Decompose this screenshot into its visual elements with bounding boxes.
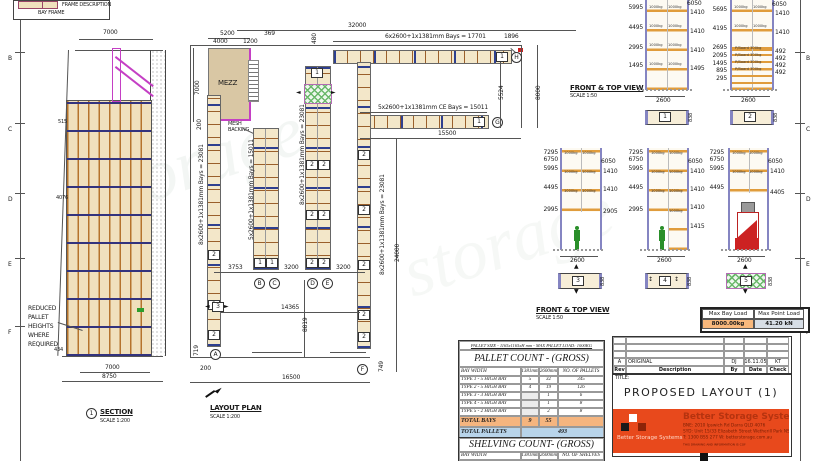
load-label: 1000kg [749,171,763,175]
run-label-23081-right: 8x2600+1x1381mm Bays = 23081 [380,174,386,275]
load-label: 1000kg [753,25,767,29]
level-dim: 1495 [613,63,643,69]
top-view-number: 4 [659,276,671,286]
level-dim: 6750 [696,157,724,163]
load-label: 1000kg [732,171,746,175]
bay-number: 1 [311,68,323,78]
grid-letter: B [806,56,810,62]
elevation-type4: 1000kg 1000kg 1000kg 1000kg 1000kg 1000k… [647,148,689,250]
rack-divider [265,129,266,267]
grid-letter: B [8,56,12,62]
center-post [668,148,669,250]
rev-cell [724,351,744,358]
load-label: 1000kg [649,6,663,10]
table-cell: 2 [539,408,558,416]
load-label: 1000kg [582,190,596,194]
load-label: 1000kg [582,152,596,156]
plan-dim-16500: 16500 [282,375,300,381]
width-dim: 2600 [657,258,671,264]
front-top-view-label-2: FRONT & TOP VIEW [536,307,609,314]
bay-number: 1 [496,52,508,62]
col-header: 1381mm [521,367,539,376]
load-label: 1000kg [669,190,683,194]
col-header: NO. OF SHELVES [558,452,604,460]
load-label: 1000kg [651,190,665,194]
border-tick [795,193,805,194]
bay-number: 2 [306,258,318,268]
legend-bay-frame-swatch [18,1,44,9]
table-cell: 19 [539,384,558,392]
section-dim-a: 515 [58,120,67,125]
total-bays-1381: 9 [521,416,539,427]
title-label: TITLE: [615,376,629,381]
grid-letter: D [8,197,12,203]
table-cell: 126 [558,384,604,392]
grid-circle-b: B [254,278,265,289]
company-name: Better Storage Systems [683,412,789,422]
load-label: 1000kg [732,152,746,156]
bay-number: 2 [358,332,370,342]
dim-line [333,41,521,42]
sheet-border-left [20,0,21,461]
drawing-title: PROPOSED LAYOUT (1) [612,382,790,402]
col-header: NO. OF PALLETS [558,367,604,376]
bay-number: 2 [306,160,318,170]
load-label: 1000kg [564,171,578,175]
border-tick [15,193,25,194]
level-dim: 4195 [701,26,727,32]
section-note-line3: HEIGHTS [28,324,53,330]
plan-dim-3200a: 3200 [284,265,298,271]
table-cell: TYPE 5 - 2 HIGH BAY [459,408,521,416]
logo-wordmark: Better Storage Systems [617,435,683,441]
company-address-1: BNE: 2010 Ipswich Rd Darra QLD 4076 [683,423,765,428]
section-floor-line [62,356,163,357]
bay-number: 2 [208,250,220,260]
plan-dim-bays-17701: 6x2600+1x1381mm Bays = 17701 [385,34,486,40]
section-dim-8750: 8750 [102,374,116,380]
logo-square-white [629,414,637,422]
table-cell: 5 [521,376,539,384]
dim-line [221,312,360,313]
ground-line [721,249,773,251]
plan-dim-7000: 7000 [195,81,201,95]
bay-number: 2 [358,205,370,215]
total-bays-2600: 55 [539,416,558,427]
rev-description: ORIGINAL [626,358,724,366]
border-tick [15,52,25,53]
section-scale: SCALE 1:200 [100,419,130,424]
plan-dim-5524: 5524 [499,86,505,100]
run-label-23081-mid: 8x2600+1x1381mm Bays = 23081 [300,104,306,205]
total-bays-label: TOTAL BAYS [459,416,521,427]
load-label: 1000kg [669,171,683,175]
table-cell: 8 [558,400,604,408]
level-dim: 4495 [528,185,558,191]
person-icon [657,226,667,250]
bay-number: 2 [208,330,220,340]
load-label: 1000kg [734,25,748,29]
rack-run-ce [360,115,489,129]
col-header: 2600mm [539,367,558,376]
arrow-left-icon: ◄ [205,304,210,310]
level-dim: 895 [701,68,727,74]
forklift-stripe [737,220,757,238]
company-footer: Better Storage Systems Better Storage Sy… [613,409,789,453]
top-view-number: 5 [740,276,752,286]
grid-circle-c: C [269,278,280,289]
plan-dim-5200: 5200 [220,31,234,37]
bay-number: 2 [358,150,370,160]
person-body [574,230,580,241]
load-label: 1000kg [649,44,663,48]
plan-dim-200b: 200 [200,366,211,372]
load-label: 1000kg [668,63,682,67]
load-label: 1000kg [649,63,663,67]
section-dim-c: 434 [54,348,63,353]
grid-letter: E [8,262,12,268]
sheet-border-right [800,0,801,461]
dim-line [237,30,576,31]
bay-number: 1 [254,258,266,268]
registration-mark [700,453,708,461]
section-title: SECTION [100,409,133,416]
table-cell: 6 [558,392,604,400]
revision-table: A ORIGINAL DJ 16.11.05 KT Rev Descriptio… [612,336,792,375]
rev-check: KT [767,358,789,366]
company-contact: T: 1300 BSS 277 W: betterstorage.com.au [683,435,772,440]
total-bays-empty [558,416,604,427]
bay-number: 2 [318,210,330,220]
tunnel-bay-hatch [304,84,332,104]
section-note-line5: REQUIRED [28,342,58,348]
bay-number-type3: 3 [212,302,224,312]
run-label-15011: 5x2600+1x1381mm Bays = 15011 [249,139,255,240]
arrow-updown-icon: ↕ [674,277,679,283]
wall-notch [252,352,302,353]
bay-number: 2 [318,160,330,170]
rev-cell [613,337,626,344]
dim-line [79,39,153,40]
border-tick [795,123,805,124]
table-cell: 1 [539,392,558,400]
level-dim: 2995 [528,207,558,213]
section-note-line2: PALLET [28,315,48,321]
spacing-dim: 1410 [770,169,784,175]
grid-circle-d: D [307,278,318,289]
arrow-up-icon: ▲ [743,264,748,270]
plan-dim-480: 480 [312,33,318,44]
level-dim: 295 [701,76,727,82]
plan-dim-200a: 200 [197,119,203,130]
level-dim: 5995 [615,166,643,172]
load-label: 1000kg [651,171,665,175]
depth-dim: 838 [689,113,694,122]
mezzanine-label: MEZZ [218,80,237,87]
depth-dim: 838 [774,113,779,122]
plan-dim-1896: 1896 [504,34,518,40]
arrow-up-icon: ▲ [574,264,579,270]
grid-letter: F [8,330,11,336]
layout-plan-title: LAYOUT PLAN [210,405,262,412]
level-dim: 5695 [701,7,727,13]
rev-cell [724,337,744,344]
ground-line [553,249,605,251]
table-cell: TYPE 2 - 5 HIGH BAY [459,384,521,392]
north-arrow-head [214,385,221,393]
load-label: 1000kg [734,6,748,10]
grid-circle-f: F [357,364,368,375]
border-tick [15,326,25,327]
depth-dim: 838 [769,277,774,286]
wall-notch [330,352,366,353]
arrow-right-icon: ► [331,90,336,96]
spacing-dim: 1410 [690,205,704,211]
load-label: 1000kg [582,171,596,175]
grid-letter: E [806,262,810,268]
rev-cell [744,344,767,351]
level-dim: 5995 [613,5,643,11]
level-dim: 2695 [701,45,727,51]
bay-number: 2 [358,260,370,270]
front-top-view-scale-2: SCALE 1:50 [536,316,563,321]
north-arrow-icon [206,386,220,400]
load-label: 1000kg [669,152,683,156]
border-tick [15,123,25,124]
max-point-load-value: 41.20 kN [754,319,804,329]
rev-cell [626,337,724,344]
level-dim: 2095 [701,53,727,59]
pboard-label: P/Board 300kg [735,68,761,72]
spacing-dim: 6050 [768,159,782,165]
run-label-23081-left: 8x2600+1x1381mm Bays = 23081 [199,144,205,245]
plan-dim-24000: 24000 [395,244,401,262]
rev-letter: A [613,358,626,366]
person-icon [572,226,582,250]
table-cell [521,408,539,416]
plan-dim-32000: 32000 [348,23,366,29]
wall-line-left [190,45,191,357]
rev-cell [724,344,744,351]
dim-line [62,381,163,382]
width-dim: 2600 [741,98,755,104]
dim-line [360,112,487,113]
ground-line [723,89,777,91]
table-cell: 4 [521,384,539,392]
plan-dim-bays-15011ce: 5x2600+1x1381mm CE Bays = 15011 [378,105,488,111]
load-label: 1000kg [668,44,682,48]
arrow-updown-icon: ↕ [648,277,653,283]
legend-frame-description-label: FRAME DESCRIPTION [62,3,111,8]
rev-cell [767,351,789,358]
table-cell: 8 [558,408,604,416]
spacing-dim: 1415 [690,224,704,230]
disclaimer-text: THIS DRAWING AND INFORMATION IS COPYRIGH… [683,443,745,447]
level-dim: 4495 [615,185,643,191]
width-dim: 2600 [656,98,670,104]
level-dim: 2995 [613,45,643,51]
load-label: 1000kg [749,152,763,156]
ground-line [640,249,692,251]
dim-line [360,138,521,139]
spacing-dim: 1410 [775,11,789,17]
mezz-stairs [248,60,259,102]
top-view-number: 3 [572,276,584,286]
wall-line-top [190,45,521,46]
load-label: 1000kg [753,6,767,10]
table-cell [521,400,539,408]
spacing-dim: 4405 [770,190,784,196]
table-cell: 345 [558,376,604,384]
section-dim-b: 4076 [56,196,68,201]
rev-cell [626,344,724,351]
border-tick [15,258,25,259]
person-body [659,230,665,241]
table-cell: TYPE 1 - 5 HIGH BAY [459,376,521,384]
shelving-table-title: SHELVING COUNT- (GROSS) [459,438,604,452]
arrow-down-icon: ▼ [574,289,579,295]
grid-letter: C [806,127,810,133]
col-header: 2600mm [539,452,558,460]
elevation-type2: 1000kg 1000kg 1000kg 1000kg P/Board 300k… [730,0,774,90]
dim-line [214,272,365,273]
level-dim: 4495 [613,25,643,31]
section-green-marker [137,308,144,312]
level-dim: 5995 [696,166,724,172]
logo-square-black [621,423,629,431]
legend-bay-frame-swatch [42,1,58,9]
spacing-dim: 492 [775,70,786,76]
depth-dim: 838 [601,277,606,286]
spacing-dim: 6050 [601,159,615,165]
level-dim: 6750 [615,157,643,163]
level-dim: 6750 [528,157,558,163]
pboard-label: P/Board 300kg [735,54,761,58]
plan-dim-3200b: 3200 [336,265,350,271]
cad-drawing-sheet: storage storage B C D E F B C D E F FRAM… [0,0,820,461]
spacing-dim: 1410 [775,30,789,36]
grid-circle-e: E [322,278,333,289]
plan-dim-3753: 3753 [228,265,242,271]
grid-circle-a: A [210,349,221,360]
rev-cell [613,351,626,358]
rev-cell [767,337,789,344]
table-cell: TYPE 3 - 3 HIGH BAY [459,392,521,400]
section-rack-grid [66,100,152,357]
plan-dim-8819: 8819 [303,318,309,332]
border-tick [795,52,805,53]
max-point-load-label: Max Point Load [754,309,804,319]
grid-letter: C [8,127,12,133]
shelving-count-table: SHELVING COUNT- (GROSS) BAY WIDTH 1381mm… [458,437,605,461]
layout-plan-scale: SCALE 1:200 [210,415,240,420]
pboard-label: P/Board 300kg [735,61,761,65]
border-tick [795,258,805,259]
plan-dim-8000: 8000 [536,86,542,100]
section-note-line4: WHERE [28,333,49,339]
ground-line [638,89,692,91]
pallet-table-title: PALLET COUNT - (GROSS) [459,350,604,367]
spacing-dim: 6050 [687,1,701,7]
level-dim: 4495 [696,185,724,191]
section-note-line1: REDUCED [28,306,56,312]
arrow-down-icon: ▼ [743,289,748,295]
load-label: 1000kg [564,152,578,156]
plan-dim-369: 369 [264,31,275,37]
elevation-type1: 1000kg 1000kg 1000kg 1000kg 1000kg 1000k… [645,0,689,90]
company-address-2: SYD: Unit 15/33 Elizabeth Street Wetheri… [683,429,789,434]
front-top-view-scale-1: SCALE 1:50 [570,94,597,99]
load-label: 1000kg [649,25,663,29]
load-label: 1000kg [669,210,683,214]
pboard-label: P/Board 300kg [735,47,761,51]
rev-cell [613,344,626,351]
section-dim-7000-top: 7000 [103,30,117,36]
col-header: 1381mm [521,452,539,460]
bay-number: 2 [318,258,330,268]
front-top-view-label-1: FRONT & TOP VIEW [570,85,643,92]
pallet-size-note: PALLET SIZE - 1165x1165xH mm - MAX PALLE… [459,341,604,350]
legend-bay-frame-label: BAY FRAME [38,11,64,16]
load-label: 1000kg [564,190,578,194]
rev-by: DJ [724,358,744,366]
bay-number: 2 [306,210,318,220]
level-dim: 2995 [615,207,643,213]
top-view-number: 1 [659,112,671,122]
rev-cell [744,351,767,358]
pallet-count-table: PALLET SIZE - 1165x1165xH mm - MAX PALLE… [458,340,605,439]
max-bay-load-value: 8000.00kg [702,319,754,329]
load-label: 1000kg [668,25,682,29]
spacing-dim: 6050 [772,2,786,8]
logo-square-dark [638,423,646,431]
dim-line [190,382,370,383]
arrow-right-icon: ► [224,304,229,310]
arrow-left-icon: ◄ [296,90,301,96]
plan-dim-14365: 14365 [281,305,299,311]
col-header: BAY WIDTH [459,367,521,376]
bay-number: 1 [473,117,485,127]
rev-cell [767,344,789,351]
forklift-icon [735,202,759,250]
section-marker-circle: 1 [86,408,97,419]
rev-cell [626,351,724,358]
table-cell [521,392,539,400]
bay-number: 1 [266,258,278,268]
grid-circle-g: G [492,117,503,128]
level-dim: 5995 [528,166,558,172]
table-cell: TYPE 4 - 5 HIGH BAY [459,400,521,408]
max-bay-load-label: Max Bay Load [702,309,754,319]
rev-date: 16.11.05 [744,358,767,366]
col-header: BAY WIDTH [459,452,521,460]
grid-letter: D [806,197,810,203]
depth-dim: 838 [688,277,693,286]
rack-run-double-1 [253,128,279,270]
rev-cell [744,337,767,344]
table-cell: 1 [539,400,558,408]
grid-circle-h: H [511,52,522,63]
plan-dim-15500: 15500 [438,131,456,137]
max-load-box: Max Bay Load Max Point Load 8000.00kg 41… [700,307,810,333]
top-view-number: 2 [744,112,756,122]
table-cell: 32 [539,376,558,384]
load-label: 1000kg [651,152,665,156]
plan-dim-719: 719 [194,345,200,356]
section-dim-7000-bottom: 7000 [105,365,119,371]
plan-dim-749: 749 [379,361,385,372]
load-label: 1000kg [668,6,682,10]
